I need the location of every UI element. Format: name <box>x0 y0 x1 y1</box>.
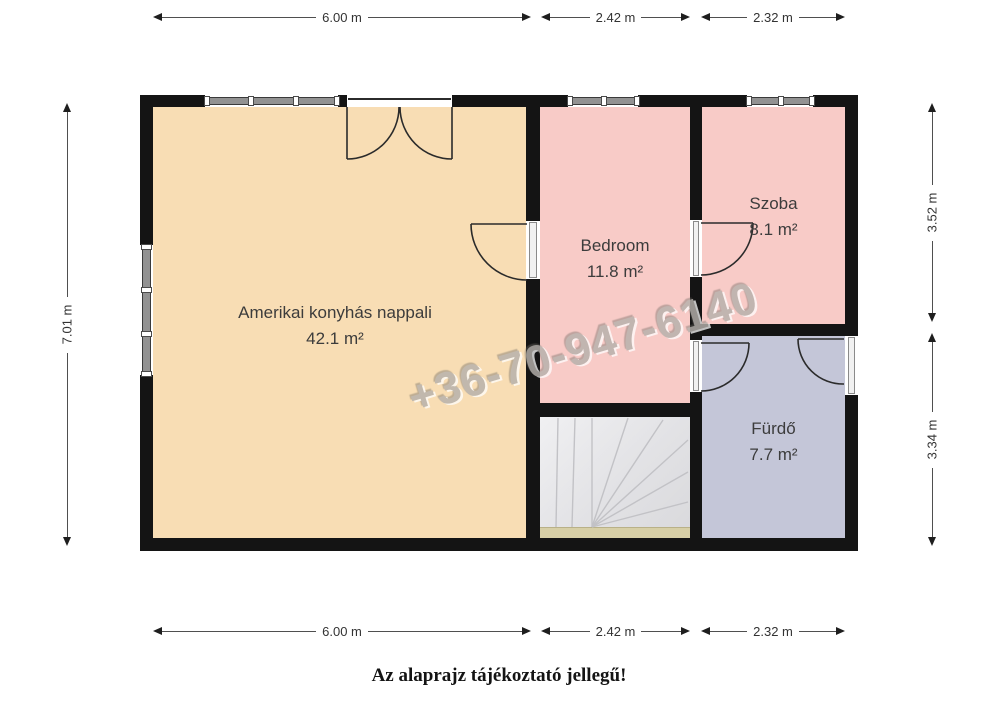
floor-plan-canvas: Amerikai konyhás nappali 42.1 m² Bedroom… <box>0 0 1000 707</box>
dimension-bottom-232: 2.32 m <box>701 624 845 638</box>
arrow-left-icon <box>153 13 162 21</box>
dimension-line <box>641 631 681 632</box>
dimension-line <box>641 17 681 18</box>
dimension-label: 3.52 m <box>912 185 952 241</box>
door-arc-living-bedroom <box>471 224 527 280</box>
arrow-up-icon <box>928 103 936 112</box>
dimension-line <box>368 17 522 18</box>
stair-tread-line <box>556 418 558 527</box>
dimension-label: 6.00 m <box>316 10 368 25</box>
arrow-left-icon <box>701 627 710 635</box>
dimension-right-352: 3.52 m <box>925 103 939 322</box>
dimension-text: 3.52 m <box>925 193 940 233</box>
arrow-left-icon <box>541 627 550 635</box>
disclaimer-caption: Az alaprajz tájékoztató jellegű! <box>140 665 858 687</box>
arrow-right-icon <box>836 13 845 21</box>
room-area: 11.8 m² <box>540 259 690 285</box>
dimension-line <box>932 241 933 314</box>
dimension-line <box>710 17 747 18</box>
room-name: Amerikai konyhás nappali <box>170 300 500 326</box>
dimension-top-242: 2.42 m <box>541 10 690 24</box>
room-name: Bedroom <box>540 233 690 259</box>
stair-tread-line <box>572 418 575 527</box>
arrow-down-icon <box>63 537 71 546</box>
room-area: 7.7 m² <box>702 442 845 468</box>
arrow-left-icon <box>153 627 162 635</box>
dimension-label: 6.00 m <box>316 624 368 639</box>
room-name: Szoba <box>702 191 845 217</box>
dimension-line <box>932 112 933 185</box>
room-area: 42.1 m² <box>170 326 500 352</box>
dimension-label: 2.32 m <box>747 624 799 639</box>
arrow-up-icon <box>928 333 936 342</box>
arrow-left-icon <box>701 13 710 21</box>
dimension-line <box>162 631 316 632</box>
stair-tread-line <box>592 472 688 527</box>
dimension-line <box>710 631 747 632</box>
room-label-bedroom: Bedroom 11.8 m² <box>540 233 690 286</box>
dimension-line <box>932 342 933 412</box>
dimension-label: 2.42 m <box>590 624 642 639</box>
dimension-line <box>550 17 590 18</box>
dimension-line <box>932 468 933 538</box>
door-arc-furdo-east <box>798 339 844 384</box>
dimension-text: 3.34 m <box>925 420 940 460</box>
arrow-right-icon <box>681 627 690 635</box>
dimension-line <box>67 353 68 538</box>
arrow-left-icon <box>541 13 550 21</box>
dimension-right-334: 3.34 m <box>925 333 939 546</box>
door-arc-furdo-west <box>701 343 749 391</box>
arrow-right-icon <box>522 13 531 21</box>
dimension-label: 3.34 m <box>912 412 952 468</box>
double-door-right-arc <box>400 107 452 159</box>
dimension-label: 2.32 m <box>747 10 799 25</box>
arrow-up-icon <box>63 103 71 112</box>
arrow-down-icon <box>928 537 936 546</box>
dimension-label: 2.42 m <box>590 10 642 25</box>
dimension-line <box>67 112 68 297</box>
arrow-right-icon <box>681 13 690 21</box>
dimension-line <box>550 631 590 632</box>
dimension-line <box>368 631 522 632</box>
dimension-left-701: 7.01 m <box>60 103 74 546</box>
arrow-right-icon <box>836 627 845 635</box>
stair-treads <box>556 418 688 527</box>
double-door-left-arc <box>347 107 399 159</box>
dimension-text: 7.01 m <box>60 305 75 345</box>
room-label-szoba: Szoba 8.1 m² <box>702 191 845 244</box>
arrow-right-icon <box>522 627 531 635</box>
room-name: Fürdő <box>702 416 845 442</box>
dimension-line <box>799 631 836 632</box>
dimension-top-232: 2.32 m <box>701 10 845 24</box>
arrow-down-icon <box>928 313 936 322</box>
room-label-living: Amerikai konyhás nappali 42.1 m² <box>170 300 500 353</box>
dimension-top-6m: 6.00 m <box>153 10 531 24</box>
dimension-line <box>799 17 836 18</box>
dimension-bottom-242: 2.42 m <box>541 624 690 638</box>
dimension-line <box>162 17 316 18</box>
room-area: 8.1 m² <box>702 217 845 243</box>
dimension-label: 7.01 m <box>47 297 87 353</box>
dimension-bottom-6m: 6.00 m <box>153 624 531 638</box>
room-label-furdo: Fürdő 7.7 m² <box>702 416 845 469</box>
